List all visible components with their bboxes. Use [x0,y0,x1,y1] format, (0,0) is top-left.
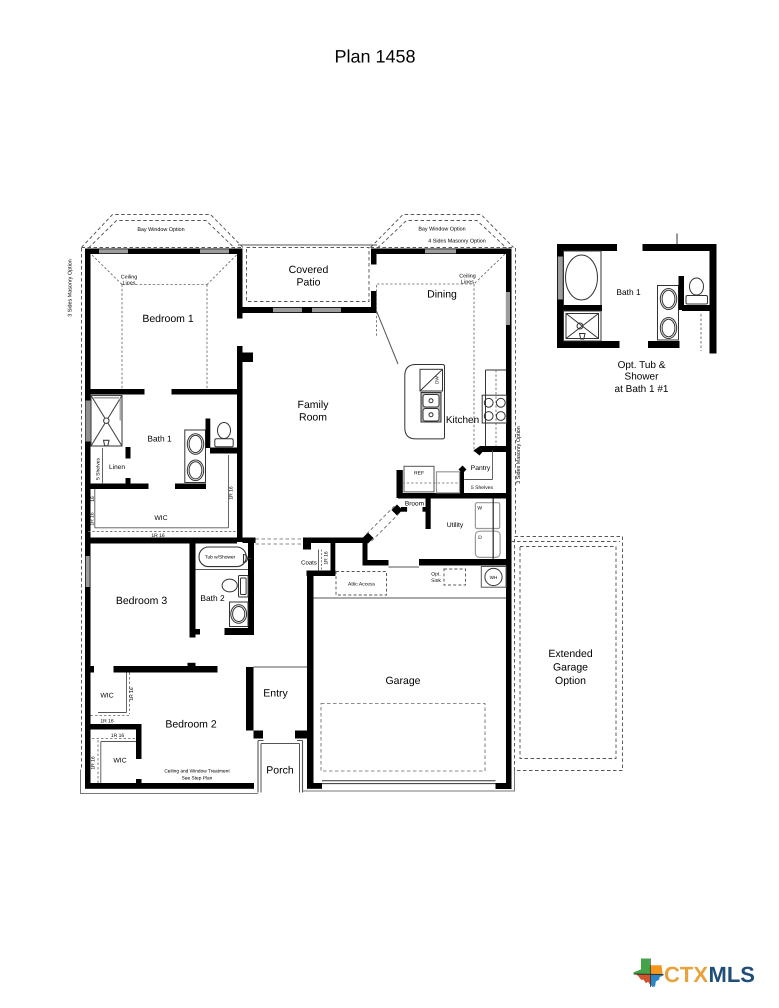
svg-text:Bath 2: Bath 2 [200,593,225,603]
svg-text:1R 16: 1R 16 [129,687,135,701]
svg-text:1R 16: 1R 16 [229,486,235,500]
svg-text:5 Shelves: 5 Shelves [471,485,493,491]
svg-text:Porch: Porch [266,765,294,777]
svg-text:3 Sides Masonry Option: 3 Sides Masonry Option [516,426,522,484]
svg-text:Attic Access: Attic Access [348,582,375,588]
svg-text:Covered: Covered [289,264,329,276]
svg-text:16: 16 [90,496,96,502]
svg-text:3 Sides Masonry Option: 3 Sides Masonry Option [68,259,74,317]
svg-text:Option: Option [555,675,586,687]
svg-text:Patio: Patio [297,277,321,289]
svg-text:D: D [478,535,482,541]
svg-text:Coats: Coats [301,560,317,567]
svg-text:Bath 1: Bath 1 [147,433,172,443]
svg-text:WIC: WIC [100,693,113,700]
svg-text:Broom: Broom [405,501,424,508]
svg-text:WIC: WIC [154,515,167,522]
svg-text:1R 16: 1R 16 [111,733,125,739]
svg-text:Linen: Linen [109,464,125,471]
svg-text:Bay Window Option: Bay Window Option [418,227,465,233]
svg-text:Opt.: Opt. [431,572,440,578]
svg-text:W: W [477,506,482,512]
svg-text:Ceiling and Window Treatment: Ceiling and Window Treatment [164,769,230,775]
svg-text:Family: Family [298,399,330,411]
svg-text:DW: DW [435,376,440,384]
svg-text:CTX: CTX [664,962,708,987]
svg-text:Bedroom 1: Bedroom 1 [142,313,194,325]
svg-text:Tub w/Shower: Tub w/Shower [205,555,236,561]
svg-text:MLS: MLS [709,962,755,987]
svg-text:Bay Window Option: Bay Window Option [137,227,184,233]
svg-text:at Bath 1 #1: at Bath 1 #1 [615,384,669,395]
svg-text:Shower: Shower [625,372,660,383]
svg-text:Sink: Sink [431,578,441,584]
svg-text:Lines: Lines [461,280,474,286]
svg-text:5 Shelves: 5 Shelves [96,458,102,480]
svg-text:Entry: Entry [263,688,288,700]
svg-text:WH: WH [490,575,498,580]
svg-text:1R 16: 1R 16 [91,756,97,770]
svg-text:Extended: Extended [548,648,593,660]
svg-text:Pantry: Pantry [471,465,491,472]
svg-text:4 Sides Masonry Option: 4 Sides Masonry Option [428,239,486,245]
svg-text:Bath 1: Bath 1 [616,287,641,297]
svg-text:Bedroom 2: Bedroom 2 [165,719,217,731]
svg-text:1R 16: 1R 16 [324,551,330,565]
svg-text:Bedroom 3: Bedroom 3 [116,595,168,607]
svg-text:Room: Room [299,412,327,424]
svg-text:Plan 1458: Plan 1458 [334,47,415,67]
svg-text:See Step Plan: See Step Plan [182,776,213,782]
svg-text:REF: REF [414,471,424,477]
svg-text:Dining: Dining [427,289,457,301]
svg-text:Garage: Garage [553,662,588,674]
svg-text:Kitchen: Kitchen [446,415,479,426]
svg-text:Opt. Tub &: Opt. Tub & [618,360,666,371]
svg-text:Lines: Lines [123,281,136,287]
svg-text:1R 16: 1R 16 [90,512,96,526]
svg-text:WIC: WIC [113,758,126,765]
svg-text:Utility: Utility [447,522,464,529]
svg-text:1R 16: 1R 16 [100,719,114,725]
svg-text:Garage: Garage [385,675,420,687]
